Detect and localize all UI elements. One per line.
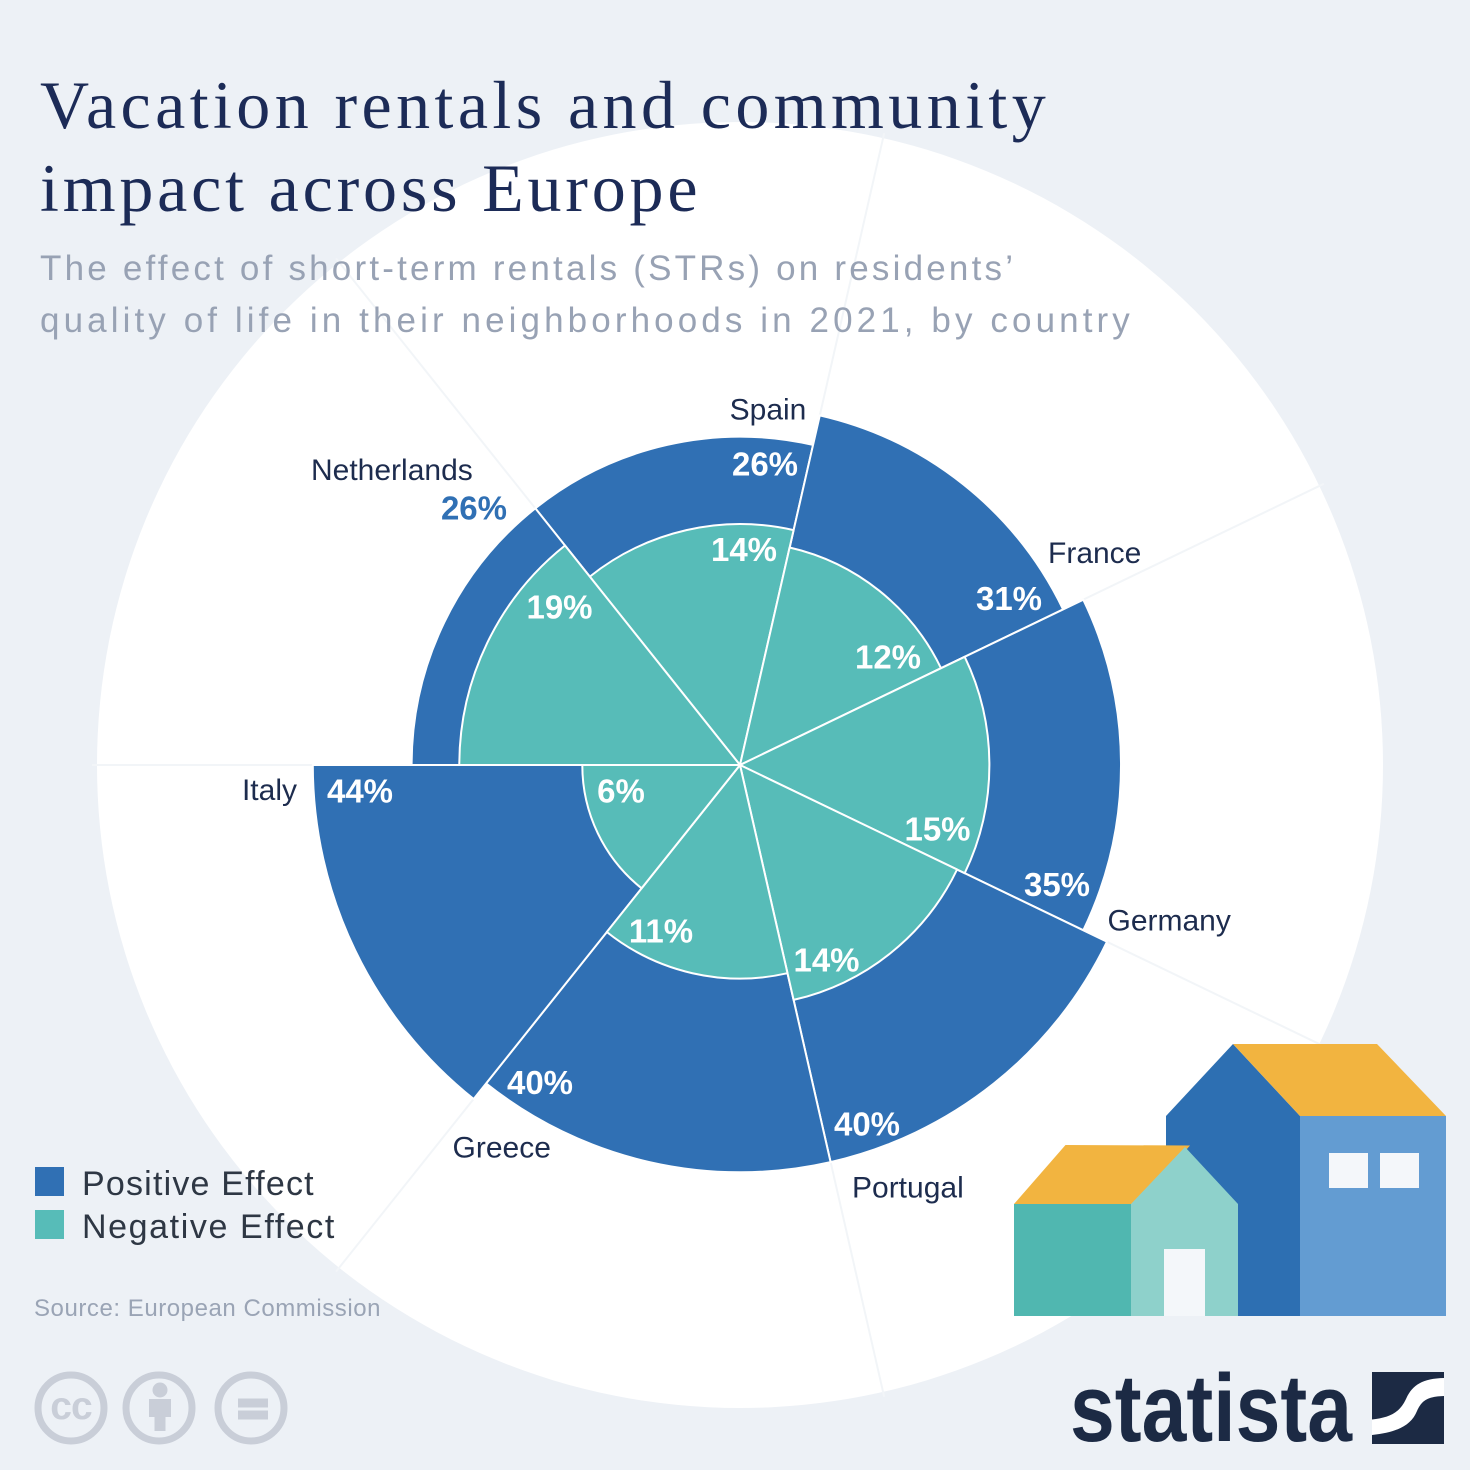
svg-text:Source: European Commission: Source: European Commission — [34, 1295, 381, 1322]
svg-text:Vacation rentals and community: Vacation rentals and community — [40, 67, 1050, 143]
svg-text:44%: 44% — [327, 773, 393, 810]
svg-text:26%: 26% — [441, 490, 507, 527]
svg-text:15%: 15% — [904, 811, 970, 848]
svg-text:Spain: Spain — [730, 394, 807, 427]
svg-text:statista: statista — [1070, 1355, 1353, 1462]
svg-text:26%: 26% — [732, 446, 798, 483]
svg-text:35%: 35% — [1024, 866, 1090, 903]
svg-text:6%: 6% — [597, 773, 645, 810]
svg-text:14%: 14% — [793, 942, 859, 979]
svg-text:Portugal: Portugal — [852, 1172, 964, 1205]
svg-text:40%: 40% — [834, 1106, 900, 1143]
svg-text:11%: 11% — [629, 913, 693, 950]
svg-text:Greece: Greece — [453, 1132, 551, 1165]
svg-text:14%: 14% — [711, 531, 777, 568]
svg-text:Negative Effect: Negative Effect — [82, 1208, 336, 1246]
svg-text:France: France — [1048, 537, 1141, 570]
svg-text:40%: 40% — [507, 1064, 573, 1101]
svg-text:cc: cc — [50, 1385, 92, 1428]
svg-text:Italy: Italy — [242, 774, 297, 807]
svg-text:31%: 31% — [976, 580, 1042, 617]
svg-text:Positive Effect: Positive Effect — [82, 1165, 315, 1203]
svg-text:Netherlands: Netherlands — [311, 454, 473, 487]
svg-text:quality of life in their neigh: quality of life in their neighborhoods i… — [40, 301, 1134, 340]
svg-text:Germany: Germany — [1108, 905, 1231, 938]
svg-text:The effect of short-term renta: The effect of short-term rentals (STRs) … — [40, 249, 1016, 288]
svg-text:19%: 19% — [526, 589, 592, 626]
svg-text:12%: 12% — [855, 639, 921, 676]
svg-text:impact across Europe: impact across Europe — [40, 150, 701, 226]
